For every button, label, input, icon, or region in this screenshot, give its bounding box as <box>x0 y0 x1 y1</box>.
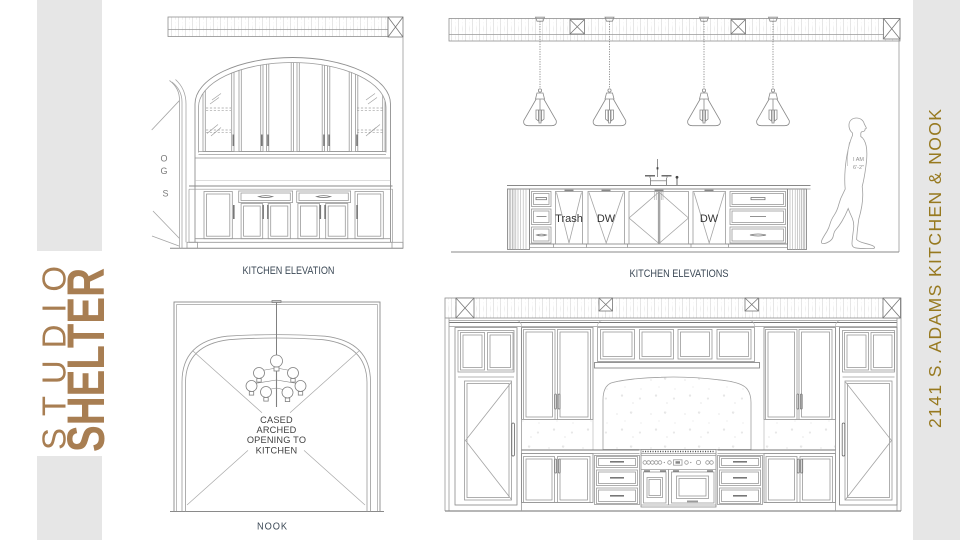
svg-text:O: O <box>160 154 167 164</box>
svg-text:KITCHEN ELEVATIONS: KITCHEN ELEVATIONS <box>630 268 729 280</box>
svg-text:I AM: I AM <box>853 157 864 163</box>
svg-text:2141 S. ADAMS KITCHEN & NOOK: 2141 S. ADAMS KITCHEN & NOOK <box>925 108 945 428</box>
svg-text:SHELTER: SHELTER <box>57 268 116 452</box>
svg-text:G: G <box>160 166 167 176</box>
svg-text:DW: DW <box>700 213 719 225</box>
svg-text:KITCHEN ELEVATION: KITCHEN ELEVATION <box>243 265 335 277</box>
svg-text:OPENING TO: OPENING TO <box>247 435 306 445</box>
svg-text:CASED: CASED <box>260 415 293 425</box>
svg-text:ARCHED: ARCHED <box>257 425 297 435</box>
svg-text:DW: DW <box>597 213 616 225</box>
svg-text:S: S <box>162 189 168 199</box>
svg-text:KITCHEN: KITCHEN <box>256 445 298 455</box>
svg-text:6'-2": 6'-2" <box>853 165 864 171</box>
svg-text:Trash: Trash <box>555 213 583 225</box>
svg-text:NOOK: NOOK <box>257 522 288 533</box>
